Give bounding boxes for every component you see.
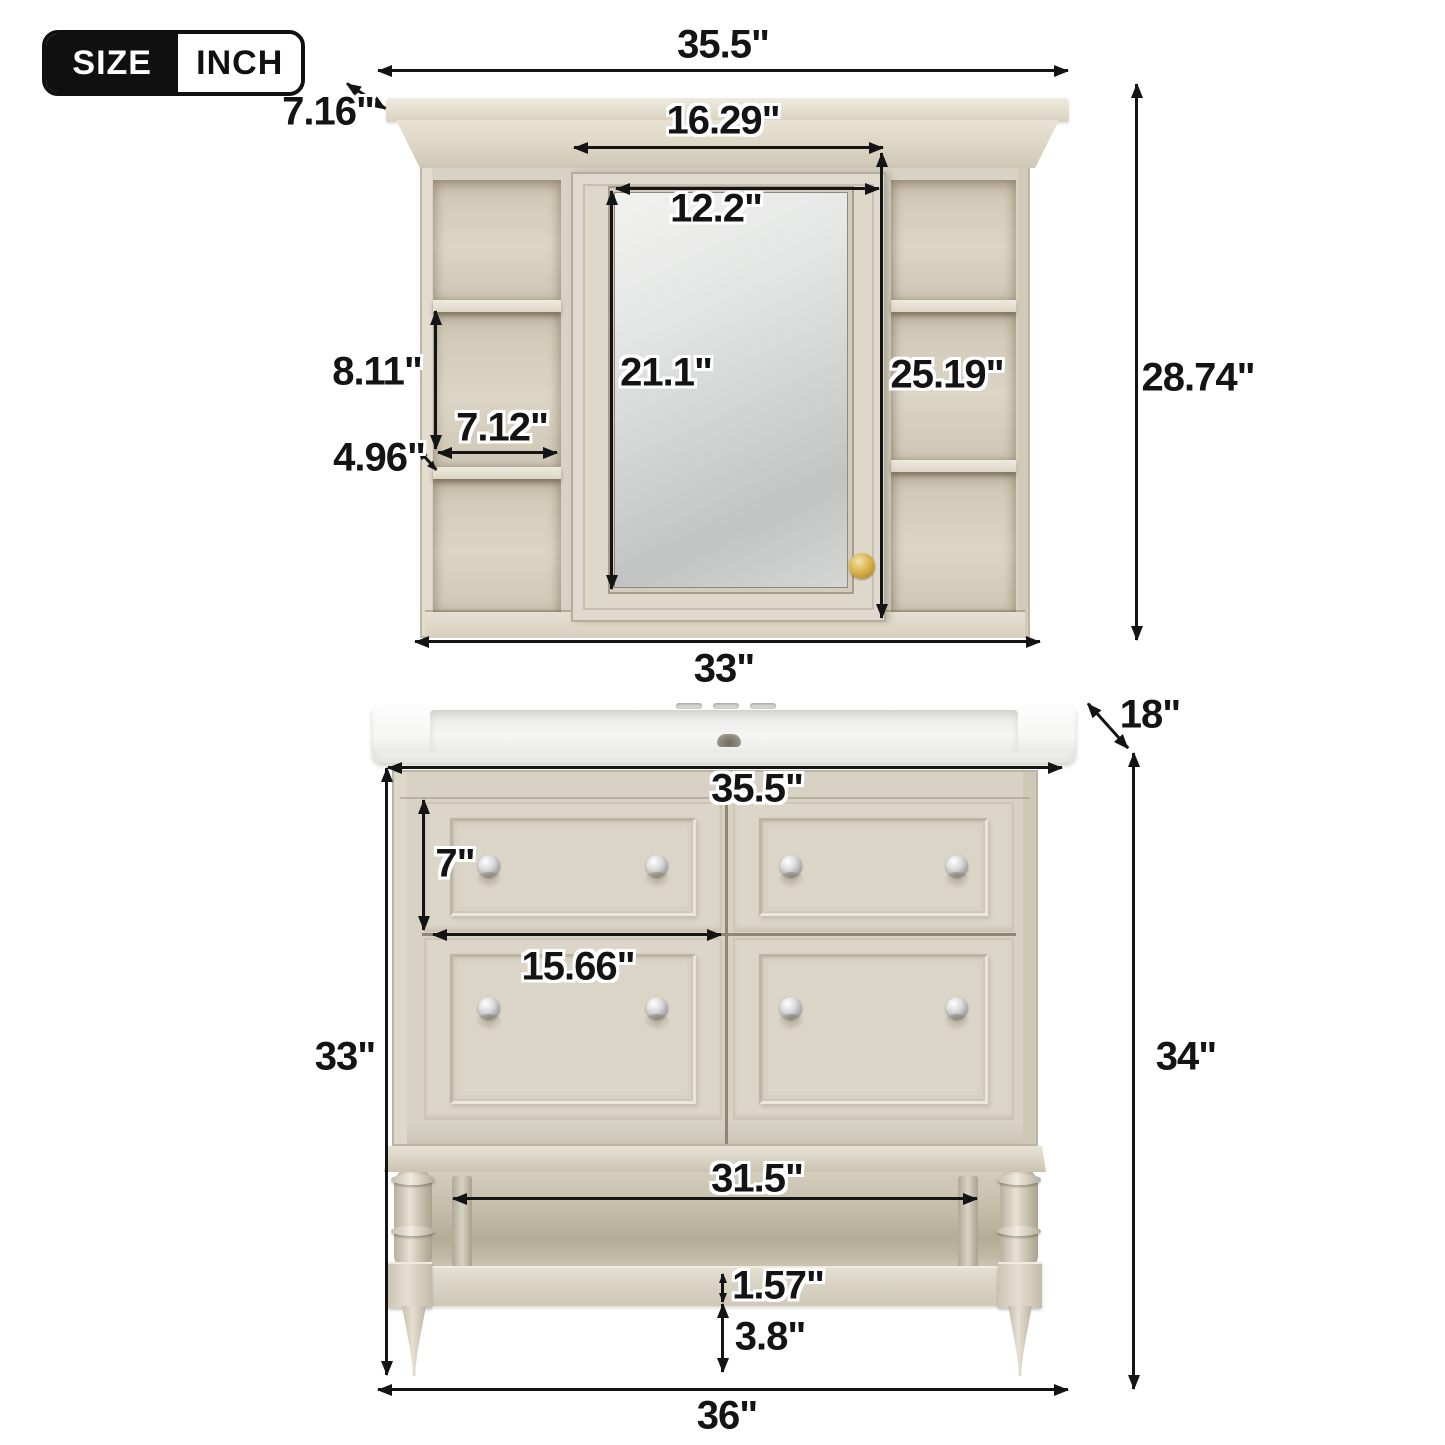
open-shelf-front: [392, 1266, 1038, 1306]
dim-v-shelf-thickness-arrow: [721, 1274, 724, 1302]
dim-mc-overall-width-arrow: [378, 69, 1068, 72]
right-shelf-opening-bottom: [891, 472, 1016, 612]
dim-mc-overall-height-arrow: [1135, 84, 1138, 640]
dim-mc-mirror-width-label: 12.2": [670, 187, 762, 232]
right-shelf-board-upper: [891, 300, 1016, 312]
center-stile-seam: [725, 800, 728, 1144]
badge-unit-label: INCH: [178, 34, 301, 92]
drawer-knob: [478, 997, 500, 1019]
dim-mc-shelf-width-label: 7.12": [456, 406, 548, 451]
dim-mc-shelf-depth-label: 4.96": [333, 436, 425, 481]
drawer-knob: [780, 855, 802, 877]
door-knob-gold-icon: [849, 553, 875, 579]
drawer-knob: [646, 855, 668, 877]
drawer-bottom-right: [733, 938, 1014, 1120]
dim-mc-depth-label: 7.16": [282, 90, 374, 135]
dim-v-drawer-width-arrow: [433, 933, 721, 936]
left-shelf-opening-bottom: [433, 479, 561, 612]
dim-v-drawer-height-arrow: [422, 800, 425, 930]
badge-size-label: SIZE: [46, 34, 178, 92]
dim-mc-body-width-label: 33": [694, 647, 754, 692]
dim-mc-door-width-label: 16.29": [666, 99, 779, 144]
leg-ring: [997, 1174, 1041, 1185]
right-shelf-board-lower: [891, 460, 1016, 472]
dim-v-shelf-width-label: 31.5": [711, 1157, 803, 1202]
dim-v-drawer-width-label: 15.66": [521, 945, 634, 990]
drawer-knob: [646, 997, 668, 1019]
drawer-knob: [946, 997, 968, 1019]
dim-mc-opening-height-label: 8.11": [332, 350, 422, 395]
dim-mc-door-width-arrow: [574, 146, 883, 149]
back-leg-right: [958, 1176, 978, 1268]
faucet-hole-center: [713, 703, 739, 709]
dim-mc-body-width-arrow: [415, 640, 1040, 643]
dim-mc-opening-height-arrow: [434, 311, 437, 449]
dim-mc-overall-height-label: 28.74": [1141, 356, 1254, 401]
dim-mc-side-height-label: 25.19": [890, 353, 1003, 398]
dim-v-drawer-height-label: 7": [435, 842, 474, 887]
dim-v-overall-height-label: 34": [1156, 1035, 1216, 1080]
dim-v-cabinet-height-label: 33": [315, 1035, 375, 1080]
faucet-hole-left: [676, 703, 702, 709]
leg-ring: [391, 1174, 435, 1185]
dim-v-shelf-thickness-label: 1.57": [732, 1264, 824, 1309]
dim-v-cabinet-height-arrow: [385, 768, 388, 1375]
dim-mc-side-height-arrow: [880, 153, 883, 618]
dim-v-top-width-label: 35.5": [711, 767, 803, 812]
drawer-knob: [478, 855, 500, 877]
left-shelf-opening-top: [433, 180, 561, 300]
dim-v-foot-height-label: 3.8": [735, 1315, 806, 1360]
left-shelf-board-lower: [433, 467, 561, 479]
size-diagram: SIZE INCH: [0, 0, 1445, 1445]
shelf-leg-block-left: [388, 1262, 432, 1308]
faucet-hole-right: [750, 703, 776, 709]
overflow-hole: [717, 734, 741, 747]
foot-right: [1005, 1306, 1035, 1376]
dim-mc-shelf-width-arrow: [438, 451, 557, 454]
left-shelf-board-upper: [433, 300, 561, 312]
leg-ring: [391, 1226, 435, 1236]
drawer-knob: [946, 855, 968, 877]
front-leg-left: [394, 1168, 432, 1268]
dim-mc-overall-width-label: 35.5": [677, 23, 769, 68]
dim-v-foot-height-arrow: [721, 1304, 724, 1372]
leg-ring: [997, 1226, 1041, 1236]
dim-v-overall-width-arrow: [378, 1388, 1068, 1391]
back-leg-left: [452, 1176, 472, 1268]
dim-mc-mirror-height-arrow: [610, 191, 613, 589]
front-leg-right: [1000, 1168, 1038, 1268]
dim-v-depth-label: 18": [1120, 693, 1180, 738]
dim-v-overall-width-label: 36": [697, 1394, 757, 1439]
foot-left: [399, 1306, 429, 1376]
dim-v-overall-height-arrow: [1132, 753, 1135, 1389]
shelf-leg-block-right: [998, 1262, 1042, 1308]
drawer-knob: [780, 997, 802, 1019]
size-unit-badge: SIZE INCH: [42, 30, 305, 96]
right-shelf-opening-top: [891, 180, 1016, 300]
dim-mc-mirror-height-label: 21.1": [620, 351, 712, 396]
drawer-top-right: [733, 802, 1014, 932]
